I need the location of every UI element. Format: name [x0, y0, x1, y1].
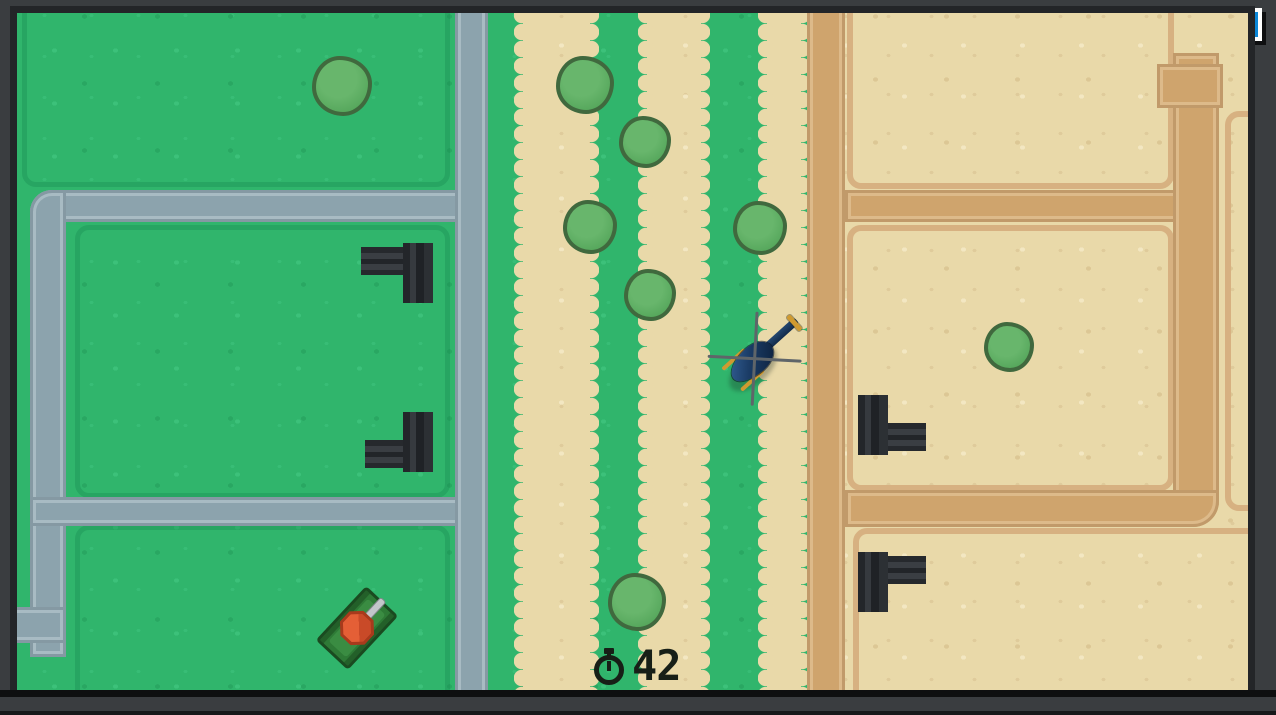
- dirt-road-horizontal: [845, 190, 1219, 222]
- countdown-timer: 42: [592, 645, 681, 687]
- gray-road-horizontal: [30, 497, 488, 526]
- frame-bottom-edge: [0, 711, 1276, 715]
- game-window: { "hud": { "player_health": { "label": "…: [0, 0, 1276, 715]
- gun-turret: [365, 412, 433, 472]
- tree: [624, 269, 676, 321]
- dirt-road-crossing: [1157, 64, 1223, 108]
- sand-field-plot: [1225, 111, 1248, 511]
- gray-road-vertical: [455, 13, 488, 690]
- dirt-road-vertical: [1173, 53, 1219, 527]
- sand-field-plot: [847, 13, 1174, 189]
- game-map[interactable]: 42: [17, 13, 1248, 690]
- gun-turret: [858, 395, 926, 455]
- grass-field-plot: [22, 13, 450, 187]
- frame-bottom-bar: [0, 697, 1276, 711]
- farm-sand-stripe: [523, 13, 590, 690]
- gray-road-stub: [17, 607, 66, 643]
- tree: [984, 322, 1034, 372]
- timer-value: 42: [632, 645, 681, 687]
- dirt-road-horizontal: [845, 490, 1219, 527]
- gray-road-vertical: [30, 190, 66, 657]
- tree: [563, 200, 617, 254]
- tree: [608, 573, 666, 631]
- gray-road-horizontal: [30, 190, 488, 222]
- gun-turret: [361, 243, 433, 303]
- frame-divider: [0, 690, 1276, 697]
- tree: [733, 201, 787, 255]
- gun-turret: [858, 552, 926, 612]
- tree: [556, 56, 614, 114]
- tree: [312, 56, 372, 116]
- tree: [619, 116, 671, 168]
- stopwatch-icon: [592, 646, 626, 686]
